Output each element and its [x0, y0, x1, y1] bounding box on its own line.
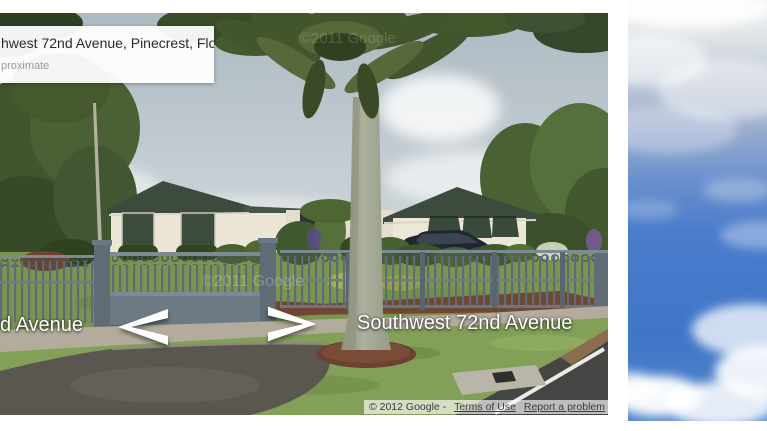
svg-text:©2011 Google: ©2011 Google — [300, 30, 396, 47]
street-label-center: Southwest 72nd Avenue — [357, 312, 572, 335]
chevron-right-icon[interactable] — [266, 303, 320, 345]
street-label-left: d Avenue — [0, 314, 83, 337]
chevron-left-icon[interactable] — [114, 307, 172, 347]
attribution-bar: © 2012 Google - Terms of Use Report a pr… — [364, 400, 608, 414]
address-approximate-note: proximate — [1, 60, 206, 72]
copyright-text: © 2012 Google - — [369, 401, 446, 413]
adjacent-sky-photo — [628, 0, 767, 421]
svg-text:©2011 Google: ©2011 Google — [202, 273, 304, 290]
sky-clouds-image — [628, 0, 767, 421]
terms-of-use-link[interactable]: Terms of Use — [454, 401, 516, 413]
address-info-box: hwest 72nd Avenue, Pinecrest, Florida pr… — [0, 26, 214, 83]
street-view-panorama[interactable]: ©2011 Google ©2011 Google hwest 72nd Ave… — [0, 13, 608, 415]
report-a-problem-link[interactable]: Report a problem — [524, 401, 605, 413]
address-title: hwest 72nd Avenue, Pinecrest, Florida — [1, 35, 206, 51]
